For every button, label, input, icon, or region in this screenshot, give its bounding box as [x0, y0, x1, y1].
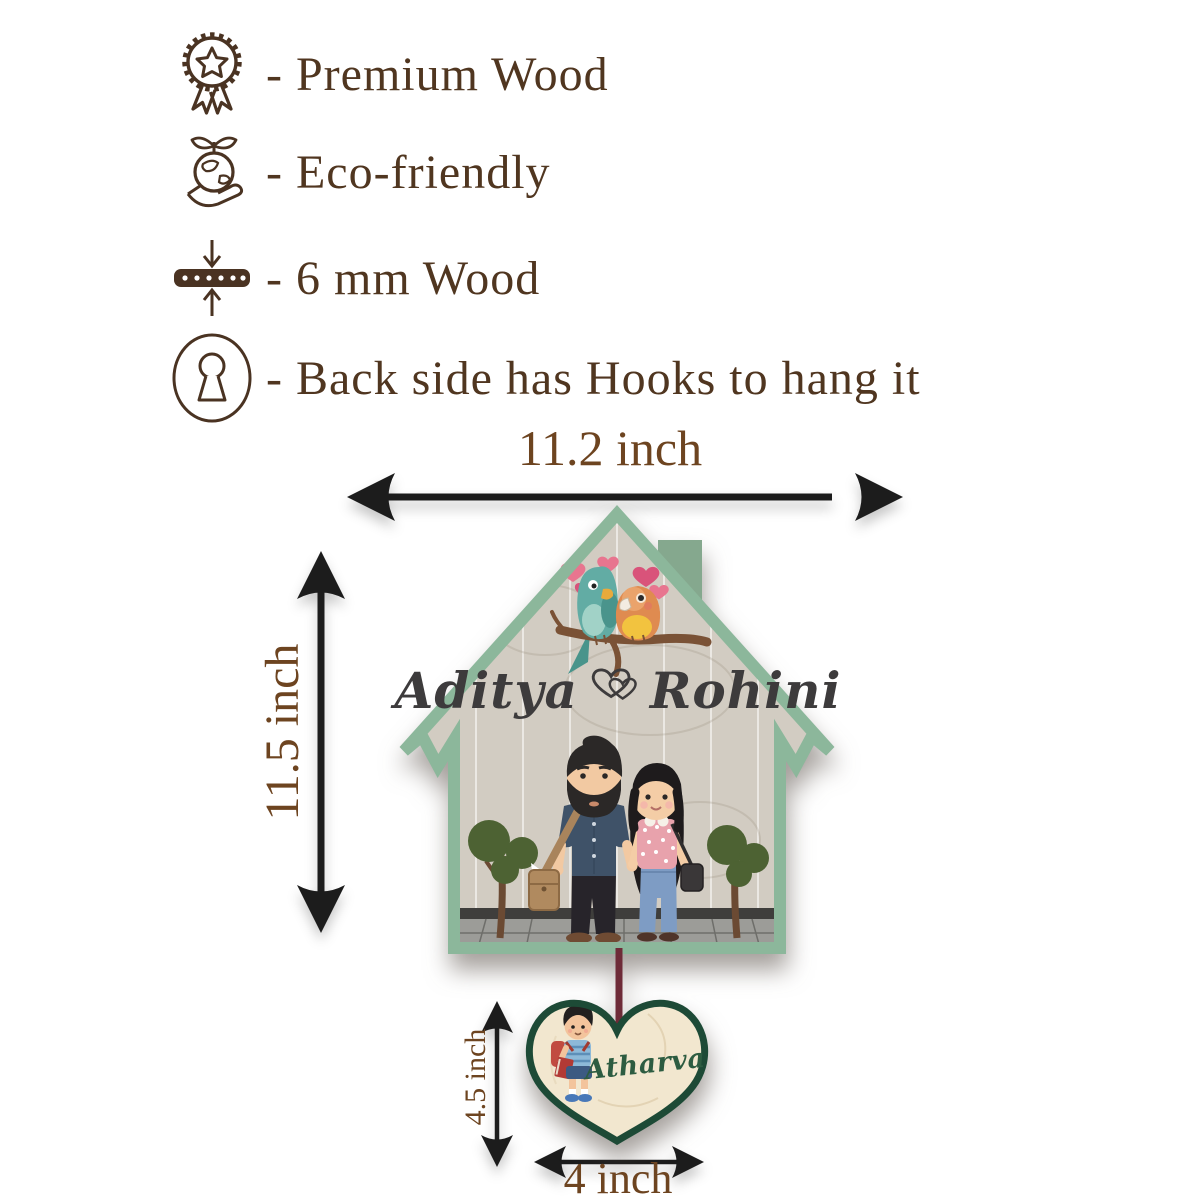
couple-name-left: Aditya — [395, 661, 578, 720]
interlocked-hearts-icon — [588, 661, 640, 720]
couple-names: Aditya Rohini — [440, 652, 796, 728]
pendant-height-dimension-label: 4.5 inch — [460, 992, 494, 1162]
width-dimension-arrow — [347, 473, 903, 521]
plaque-height-dimension-label: 11.5 inch — [258, 582, 314, 882]
product-infographic: - Premium Wood - Eco-friendly — [0, 0, 1200, 1200]
product-illustration — [0, 0, 1200, 1200]
couple-name-right: Rohini — [650, 661, 842, 720]
plaque-width-dimension-label: 11.2 inch — [440, 422, 780, 475]
pendant-width-dimension-label: 4 inch — [518, 1156, 718, 1200]
orange-bird — [616, 586, 660, 644]
